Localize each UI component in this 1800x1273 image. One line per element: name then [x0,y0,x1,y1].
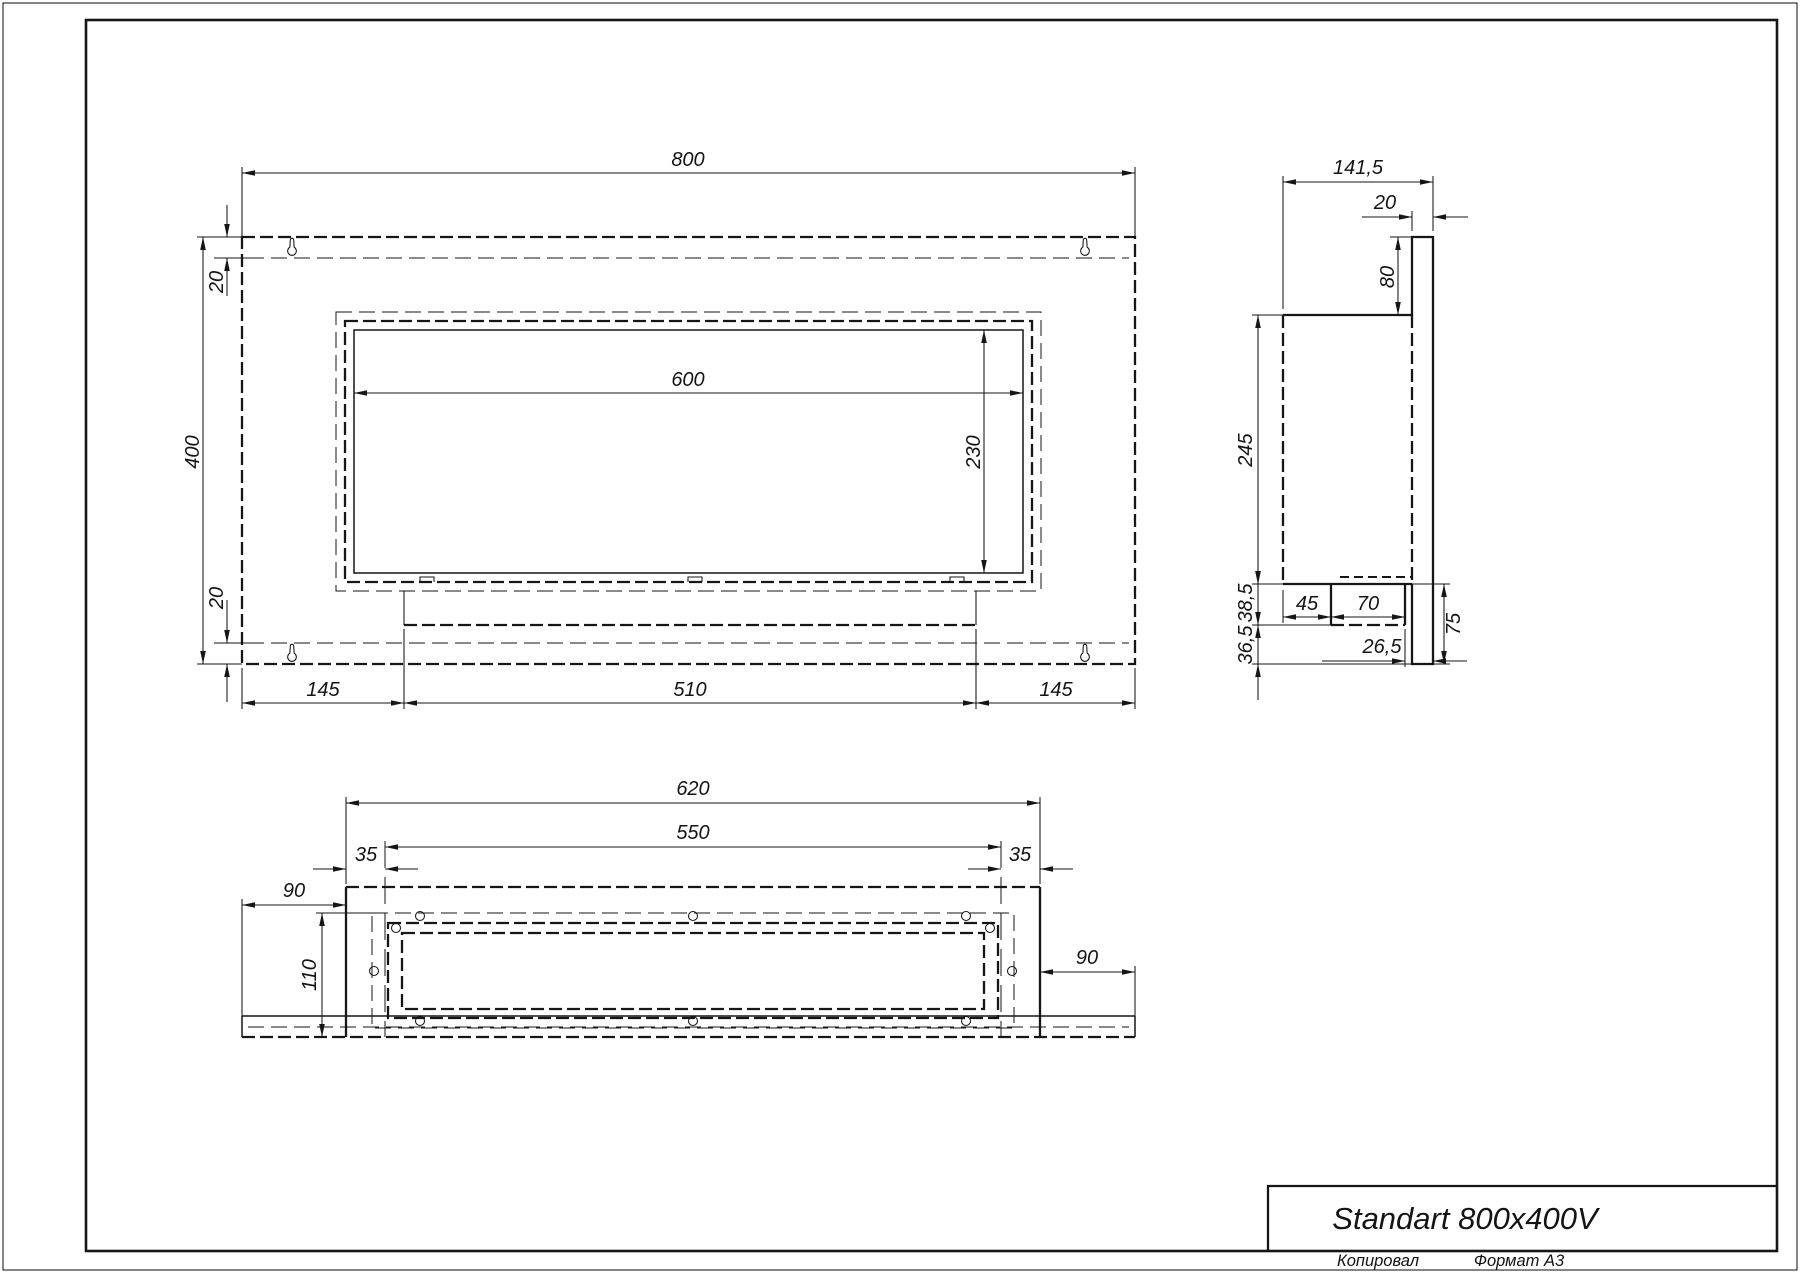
dim-side-bottom-extension: 75 [1443,612,1465,635]
dim-front-tray-width: 510 [673,679,706,701]
dim-front-width: 800 [671,149,704,171]
front-view: 800 20 400 20 600 230 [182,149,1135,709]
drawing-frame [86,20,1777,1251]
dim-bottom-inner-width: 550 [676,822,709,844]
keyhole-slot-top-left [288,238,297,255]
title-block-title: Standart 800x400V [1332,1201,1601,1236]
dim-front-opening-height: 230 [963,435,985,469]
bottom-view: 620 550 35 35 90 90 110 [242,778,1135,1037]
dim-front-left-margin: 145 [306,679,340,701]
paper-border [3,3,1797,1270]
dim-front-opening-width: 600 [671,369,704,391]
keyhole-slot-bottom-right [1081,644,1090,661]
dim-bottom-body-width: 620 [676,778,709,800]
sheet-frame [3,3,1797,1270]
dim-side-tray-offset: 45 [1296,593,1319,615]
dim-side-bottom-gap: 36,5 [1235,625,1257,665]
format-label: Формат А3 [1474,1252,1565,1270]
dim-side-rear-clearance: 26,5 [1362,636,1403,658]
dim-front-bottom-flange: 20 [206,587,228,610]
dim-bottom-left-overhang: 90 [283,880,305,902]
dim-side-panel-thickness: 20 [1373,192,1396,214]
bottom-view-outline [242,841,1135,1037]
dim-front-height: 400 [182,435,204,468]
keyhole-slot-bottom-left [288,644,297,661]
side-view: 141,5 20 80 245 38,5 36,5 [1235,157,1468,700]
dim-bottom-left-inset: 35 [355,844,378,866]
dim-front-top-flange: 20 [206,271,228,294]
dim-bottom-right-inset: 35 [1009,844,1032,866]
dim-front-right-margin: 145 [1039,679,1073,701]
front-view-outline [242,237,1135,664]
dim-side-tray-drop: 38,5 [1235,583,1257,623]
copied-label: Копировал [1337,1252,1419,1270]
dim-side-depth: 141,5 [1333,157,1384,179]
dim-side-top-extension: 80 [1377,266,1399,288]
keyhole-slot-top-right [1081,238,1090,255]
dim-bottom-depth: 110 [299,959,321,991]
drawing-sheet: 800 20 400 20 600 230 [0,0,1800,1273]
dim-side-tray-depth: 70 [1357,593,1379,615]
dim-side-body-height: 245 [1235,432,1257,467]
dim-bottom-right-overhang: 90 [1076,947,1098,969]
title-block: Standart 800x400V Копировал Формат А3 [1268,1186,1777,1270]
